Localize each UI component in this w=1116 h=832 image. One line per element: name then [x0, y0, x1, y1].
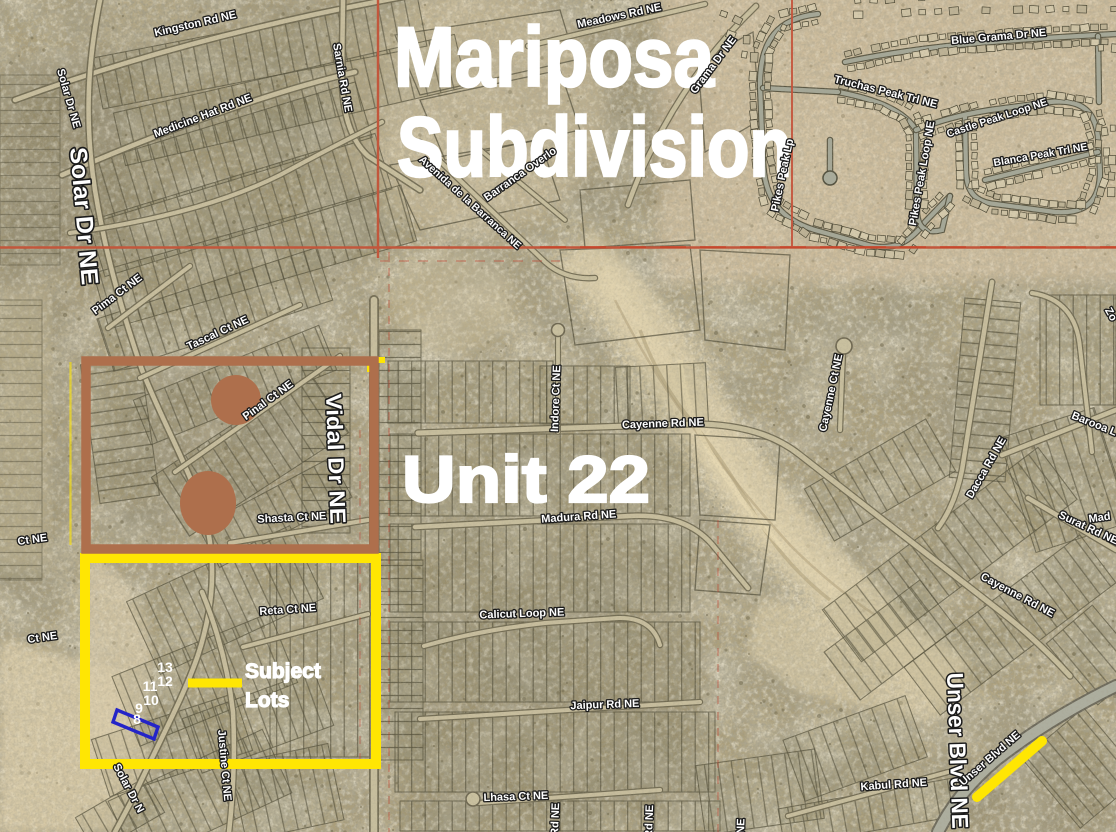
svg-text:10: 10: [143, 692, 159, 708]
svg-text:Rd NE: Rd NE: [549, 803, 562, 832]
svg-text:Lots: Lots: [245, 689, 289, 712]
svg-text:Mariposa: Mariposa: [394, 10, 715, 104]
svg-text:Indore Ct NE: Indore Ct NE: [549, 365, 563, 432]
svg-text:Lhasa Ct NE: Lhasa Ct NE: [483, 790, 548, 804]
svg-text:Subdivision: Subdivision: [397, 100, 792, 194]
svg-text:Unit 22: Unit 22: [402, 442, 650, 516]
svg-text:Vidal Dr NE: Vidal Dr NE: [321, 393, 351, 524]
svg-text:8: 8: [133, 711, 141, 727]
svg-text:Rd NE: Rd NE: [643, 805, 656, 832]
svg-text:NE: NE: [735, 818, 748, 832]
svg-text:Jaipur Rd NE: Jaipur Rd NE: [570, 698, 639, 712]
svg-text:Subject: Subject: [245, 660, 321, 683]
svg-text:Unser Blvd NE: Unser Blvd NE: [942, 672, 973, 829]
svg-text:12: 12: [157, 673, 173, 689]
